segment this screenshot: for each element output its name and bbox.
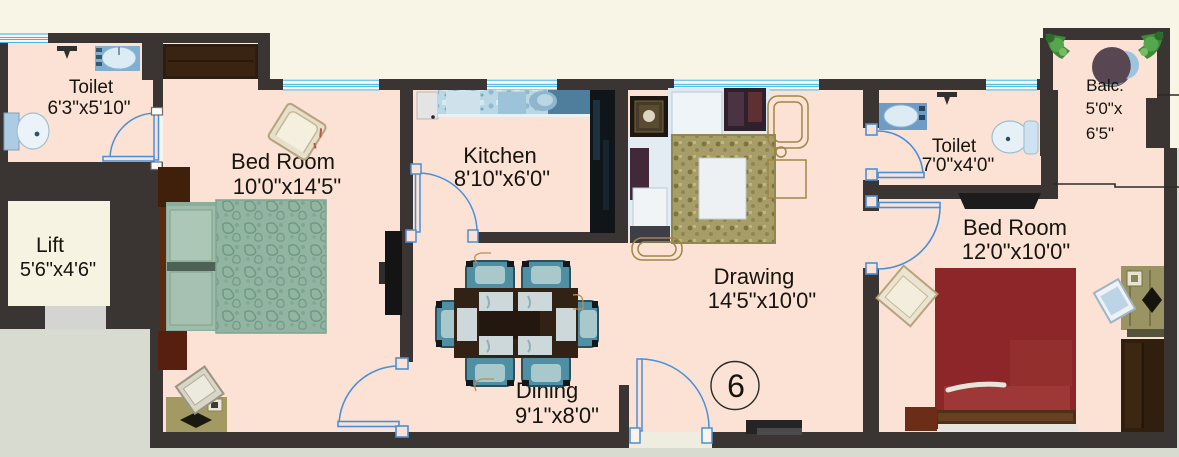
svg-text:Bed Room: Bed Room bbox=[963, 215, 1067, 240]
svg-text:14'5"x10'0": 14'5"x10'0" bbox=[708, 288, 816, 313]
svg-text:5'0"x: 5'0"x bbox=[1086, 99, 1123, 118]
svg-text:Toilet: Toilet bbox=[932, 136, 977, 157]
svg-text:6'5": 6'5" bbox=[1086, 124, 1114, 143]
svg-text:8'10"x6'0": 8'10"x6'0" bbox=[454, 166, 550, 191]
svg-text:6'3"x5'10": 6'3"x5'10" bbox=[47, 98, 130, 119]
svg-text:Toilet: Toilet bbox=[69, 77, 114, 98]
svg-text:7'0"x4'0": 7'0"x4'0" bbox=[922, 155, 995, 176]
svg-text:9'1"x8'0": 9'1"x8'0" bbox=[515, 403, 599, 428]
svg-text:Bed Room: Bed Room bbox=[231, 149, 335, 174]
svg-text:Lift: Lift bbox=[36, 234, 64, 257]
svg-text:Drawing: Drawing bbox=[714, 264, 795, 289]
svg-text:5'6"x4'6": 5'6"x4'6" bbox=[20, 259, 96, 281]
svg-text:12'0"x10'0": 12'0"x10'0" bbox=[962, 239, 1070, 264]
svg-text:Kitchen: Kitchen bbox=[463, 143, 536, 168]
svg-text:Balc.: Balc. bbox=[1086, 76, 1124, 95]
svg-text:10'0"x14'5": 10'0"x14'5" bbox=[233, 174, 341, 199]
svg-text:6: 6 bbox=[727, 368, 745, 404]
